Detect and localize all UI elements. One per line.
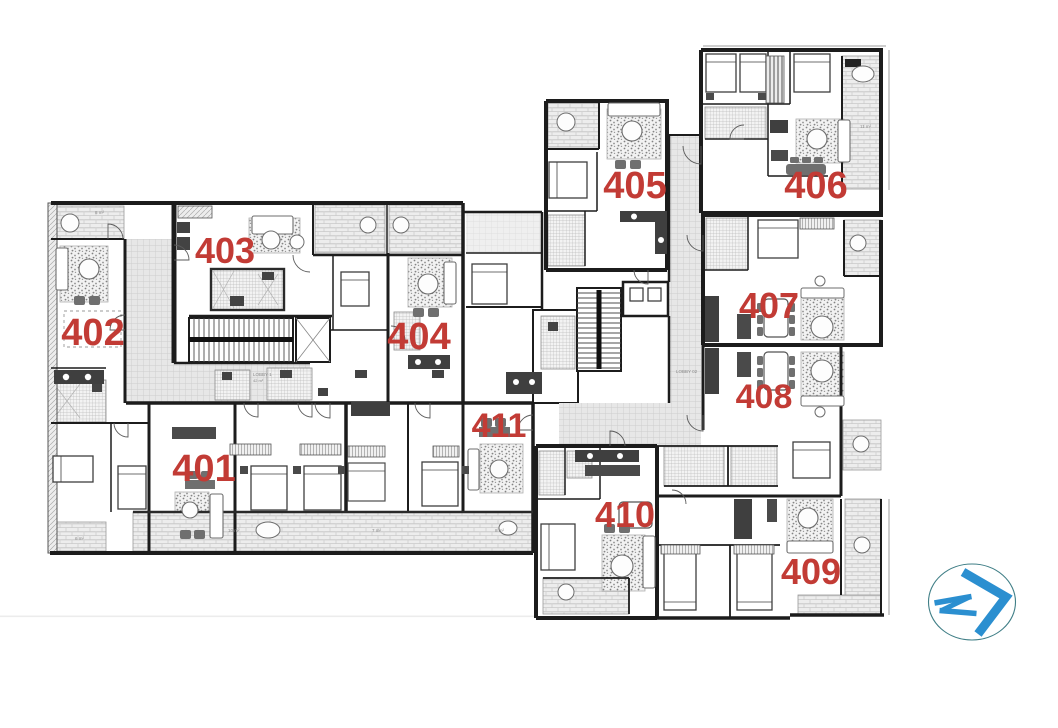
svg-text:401: 401 [172, 448, 235, 490]
svg-text:LOBBY 02: LOBBY 02 [676, 369, 698, 374]
svg-text:404: 404 [387, 316, 450, 358]
svg-text:10 m²: 10 m² [228, 528, 240, 533]
svg-text:405: 405 [603, 165, 666, 207]
svg-text:406: 406 [784, 165, 847, 207]
svg-text:11 m²: 11 m² [860, 124, 872, 129]
svg-text:42 m²: 42 m² [253, 378, 264, 383]
svg-text:410: 410 [595, 494, 655, 535]
svg-text:402: 402 [61, 312, 124, 354]
svg-text:8 m²: 8 m² [495, 528, 505, 533]
svg-text:407: 407 [739, 285, 799, 326]
svg-text:8 m²: 8 m² [95, 210, 105, 215]
svg-text:6 m²: 6 m² [75, 536, 85, 541]
svg-text:411: 411 [472, 407, 527, 445]
svg-text:7 m²: 7 m² [372, 528, 382, 533]
svg-text:403: 403 [195, 230, 255, 271]
svg-text:409: 409 [781, 551, 841, 592]
svg-text:LOBBY 1: LOBBY 1 [253, 372, 272, 377]
svg-text:408: 408 [736, 378, 793, 416]
